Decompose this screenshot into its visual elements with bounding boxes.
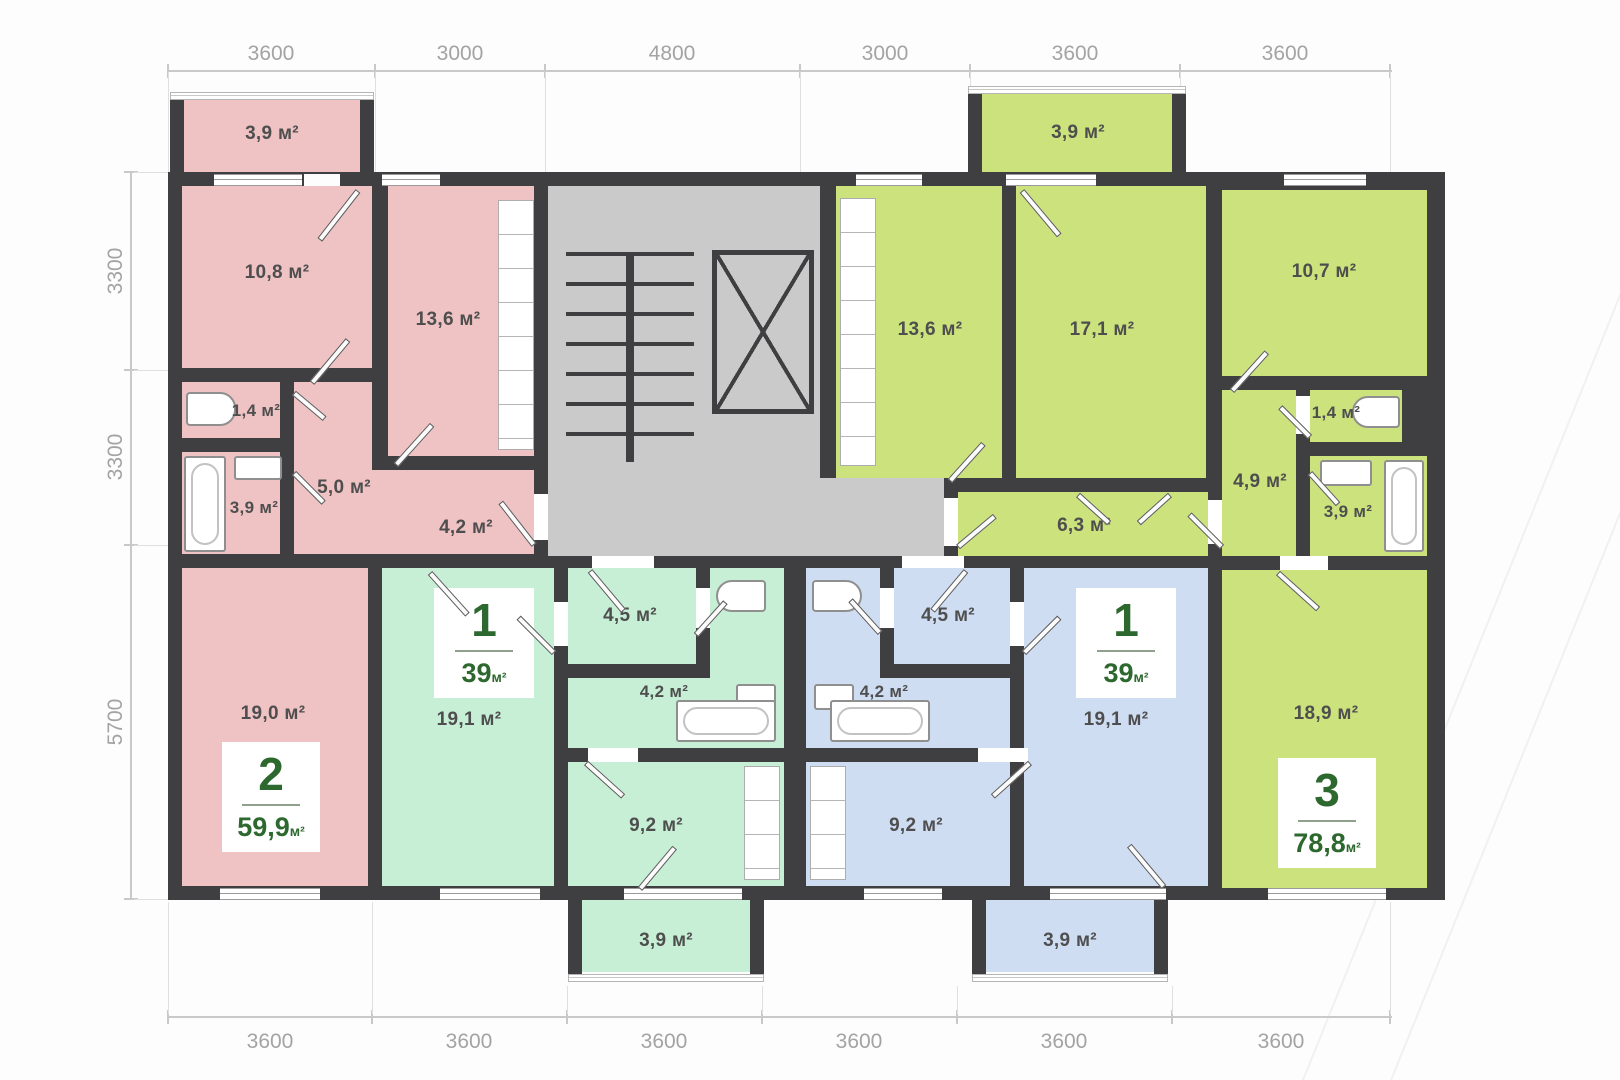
window [214, 174, 302, 186]
room-label: 9,2 м² [889, 815, 943, 837]
apartment-badge-2: 2 59,9м² [222, 742, 320, 852]
floor-plan: 3600 3000 4800 3000 3600 3600 3300 3300 … [0, 0, 1620, 1080]
room-label: 4,9 м² [1233, 471, 1287, 493]
apartment-badge-1-right: 1 39м² [1076, 588, 1176, 698]
door-gap [978, 748, 1028, 762]
balcony-wall [568, 898, 582, 978]
dim-line-top [168, 70, 1392, 72]
balcony-wall [968, 88, 982, 174]
window [856, 174, 922, 186]
room-label: 19,1 м² [437, 709, 502, 731]
room-label: 13,6 м² [416, 309, 481, 331]
door-gap [880, 588, 894, 628]
room-label: 19,1 м² [1084, 709, 1149, 731]
apartment-badge-1-left: 1 39м² [434, 588, 534, 698]
ext-line [1172, 986, 1173, 1014]
window [382, 174, 440, 186]
ext-line [372, 902, 373, 1014]
room-label: 17,1 м² [1070, 319, 1135, 341]
kitchen-units [744, 766, 780, 880]
bathtub-icon [1384, 460, 1424, 552]
apartment-area-unit: м² [1134, 669, 1149, 685]
window [1268, 888, 1386, 900]
badge-divider [1097, 650, 1155, 652]
elevator-shaft [712, 250, 814, 414]
room-label: 3,9 м² [1051, 122, 1105, 144]
dim-label: 3000 [862, 42, 909, 66]
balcony-rail [170, 92, 374, 100]
balcony-wall [750, 898, 764, 978]
ext-line [762, 986, 763, 1014]
room-label: 4,2 м² [640, 682, 688, 702]
window [440, 888, 540, 900]
dim-label: 3600 [1262, 42, 1309, 66]
ext-line [168, 902, 169, 1014]
ext-line [957, 986, 958, 1014]
room-label: 3,9 м² [1043, 930, 1097, 952]
room-hall-apt2 [294, 382, 372, 554]
balcony-wall [1154, 898, 1168, 978]
entrance-door-apt1-right [902, 556, 964, 568]
dim-label: 3600 [446, 1030, 493, 1054]
room-label: 4,2 м² [439, 517, 493, 539]
ext-line [134, 899, 168, 900]
room-label: 3,9 м² [639, 930, 693, 952]
balcony-wall [360, 94, 374, 174]
badge-divider [1298, 820, 1356, 822]
common-corridor [548, 478, 944, 556]
door-gap [1280, 556, 1328, 570]
apartment-badge-3: 3 78,8м² [1278, 758, 1376, 868]
apartment-area: 59,9 [237, 812, 290, 842]
dim-line-bottom [168, 1016, 1392, 1018]
bathtub-icon [184, 456, 226, 552]
door-gap [304, 174, 340, 186]
dim-label: 3300 [104, 248, 128, 295]
dim-label: 3600 [248, 42, 295, 66]
stairs-divider [626, 252, 634, 462]
entrance-door-apt2 [534, 494, 548, 540]
dim-label: 3600 [1052, 42, 1099, 66]
entrance-door-apt1-left [592, 556, 654, 568]
ext-line [567, 986, 568, 1014]
entrance-door-apt3 [944, 498, 958, 546]
dim-label: 3000 [437, 42, 484, 66]
room-label: 10,7 м² [1292, 261, 1357, 283]
room-label: 3,9 м² [230, 498, 278, 518]
balcony-wall [1172, 88, 1186, 174]
room-label: 18,9 м² [1294, 703, 1359, 725]
ext-line [1390, 902, 1391, 1014]
balcony-rail [568, 974, 764, 982]
apartment-area-unit: м² [1346, 839, 1361, 855]
kitchen-units [498, 200, 534, 450]
room-label: 19,0 м² [241, 703, 306, 725]
apartment-number: 2 [222, 751, 320, 797]
dim-label: 3600 [247, 1030, 294, 1054]
ext-line [134, 370, 168, 371]
dim-label: 3300 [104, 434, 128, 481]
bathtub-icon [676, 700, 776, 742]
apartment-area-unit: м² [290, 823, 305, 839]
dim-label: 4800 [649, 42, 696, 66]
apartment-area: 39 [1103, 658, 1133, 688]
dim-label: 3600 [836, 1030, 883, 1054]
room-label: 10,8 м² [245, 262, 310, 284]
sink-icon [234, 456, 282, 480]
ext-line [134, 172, 168, 173]
window [1284, 174, 1366, 186]
apartment-number: 1 [1076, 597, 1176, 643]
room-label: 4,2 м² [860, 682, 908, 702]
balcony-rail [968, 86, 1186, 94]
room-label: 4,5 м² [603, 605, 657, 627]
door-gap [588, 748, 638, 762]
room-label: 3,9 м² [1324, 502, 1372, 522]
kitchen-units [840, 198, 876, 466]
balcony-rail [972, 974, 1168, 982]
ext-line [375, 72, 376, 172]
dim-line-left [130, 172, 132, 900]
apartment-number: 3 [1278, 767, 1376, 813]
balcony-wall [170, 94, 184, 174]
door-gap [554, 602, 568, 646]
window [864, 888, 942, 900]
ext-line [800, 72, 801, 172]
kitchen-units [810, 766, 846, 880]
ext-line [168, 72, 169, 172]
dim-label: 3600 [641, 1030, 688, 1054]
dim-label: 3600 [1258, 1030, 1305, 1054]
bathtub-icon [830, 700, 930, 742]
room-bedroom-apt3 [1222, 190, 1427, 376]
room-label: 13,6 м² [898, 319, 963, 341]
window-balcony-door [1050, 888, 1166, 900]
badge-divider [242, 804, 300, 806]
room-label: 1,4 м² [232, 401, 280, 421]
balcony-wall [972, 898, 986, 978]
room-label: 5,0 м² [317, 477, 371, 499]
stairs [634, 252, 694, 462]
room-label: 9,2 м² [629, 815, 683, 837]
dim-label: 5700 [104, 699, 128, 746]
window [220, 888, 320, 900]
toilet-icon [186, 392, 236, 426]
door-gap [1010, 602, 1024, 646]
badge-divider [455, 650, 513, 652]
apartment-area: 78,8 [1293, 828, 1346, 858]
ext-line [545, 72, 546, 172]
dim-label: 3600 [1041, 1030, 1088, 1054]
sink-icon [1320, 460, 1372, 486]
apartment-area: 39 [461, 658, 491, 688]
ext-line [1390, 72, 1391, 172]
stairs [566, 252, 626, 462]
room-label: 1,4 м² [1312, 403, 1360, 423]
ext-line [134, 545, 168, 546]
room-label: 3,9 м² [245, 123, 299, 145]
apartment-area-unit: м² [492, 669, 507, 685]
window-balcony-door [1006, 174, 1096, 186]
